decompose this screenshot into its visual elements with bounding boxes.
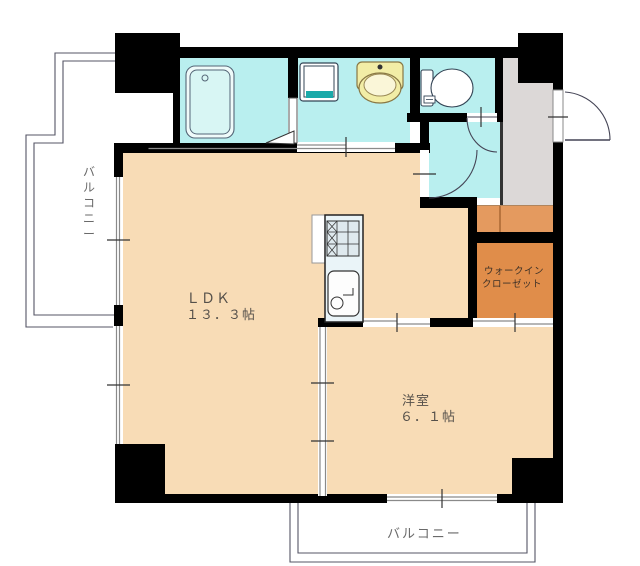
ldk-window-upper (113, 177, 123, 305)
ldk-bedroom-partition (318, 327, 327, 496)
entry-step (475, 205, 553, 232)
bedroom-size-label: ６．１帖 (400, 410, 456, 425)
bathtub-icon (186, 66, 234, 138)
toilet-icon (421, 69, 473, 107)
genkan-hall-partition (500, 122, 503, 205)
floorplan-drawing: ＬＤＫ １３．３帖 洋室 ６．１帖 ウォークイン クローゼット バルコニー バル… (0, 0, 640, 566)
bedroom-label: 洋室 (402, 393, 430, 409)
washing-machine-pan-icon (300, 63, 338, 101)
wic-label-line2: クローゼット (482, 278, 542, 290)
entry-genkan (503, 83, 553, 205)
entrance-door-arc (565, 92, 610, 140)
entry-genkan-upper (503, 58, 518, 83)
balcony-left-outline (26, 53, 115, 327)
wic-sliding-door (473, 318, 553, 327)
entrance-door-opening (553, 90, 563, 142)
kitchen-sink-icon (328, 271, 359, 316)
wic-label-line1: ウォークイン (484, 266, 544, 277)
refrigerator-space (312, 215, 325, 263)
floorplan-canvas: ＬＤＫ １３．３帖 洋室 ６．１帖 ウォークイン クローゼット バルコニー バル… (0, 0, 640, 566)
balcony-left-label: バルコニー (83, 165, 95, 241)
hallway (429, 122, 500, 198)
balcony-bottom-label: バルコニー (387, 527, 462, 542)
ldk-size-label: １３．３帖 (186, 308, 256, 323)
ldk-room-extension (429, 208, 468, 318)
ldk-label: ＬＤＫ (186, 291, 231, 307)
washbasin-icon (357, 62, 403, 103)
stove-icon (327, 221, 359, 256)
